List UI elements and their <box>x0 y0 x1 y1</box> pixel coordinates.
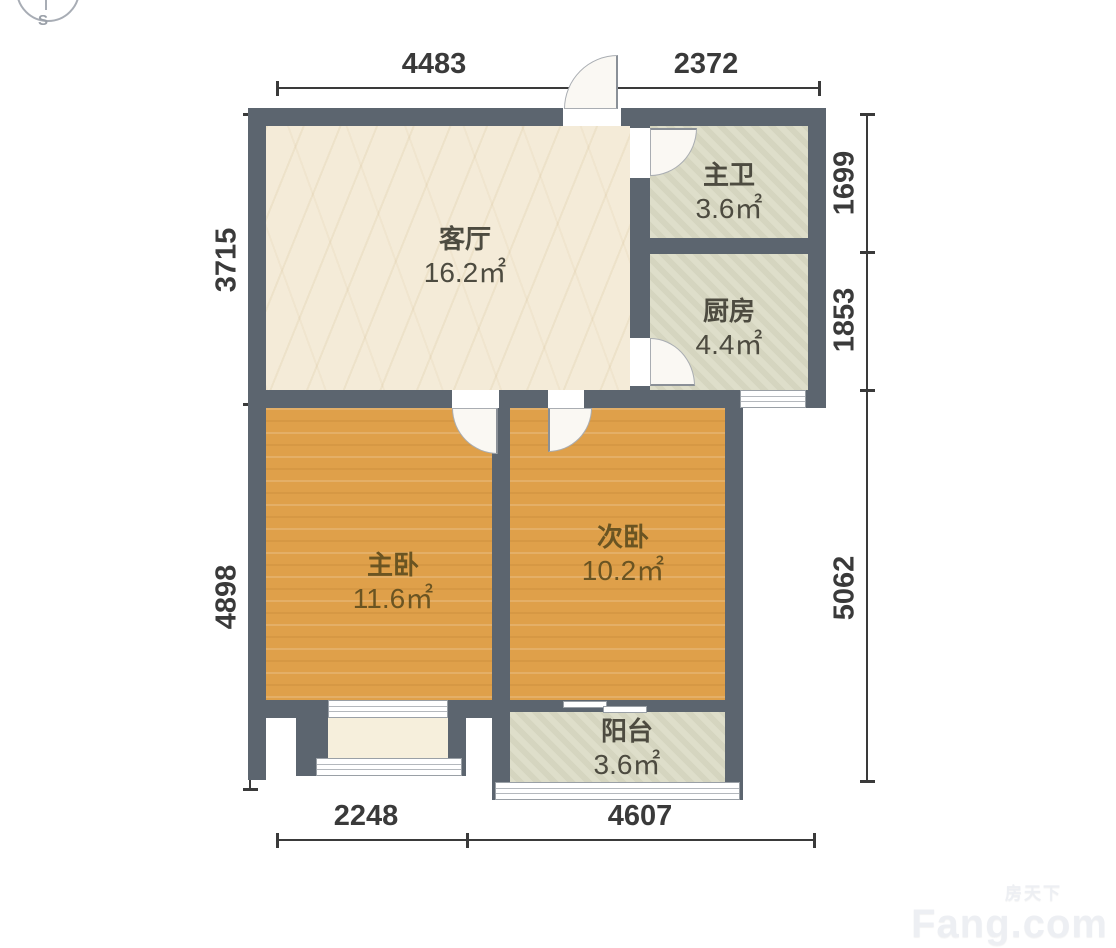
room-label-master-bedroom: 主卧 11.6㎡ <box>308 550 478 616</box>
dim-label-right-1: 1699 <box>829 151 862 216</box>
balcony-name: 阳台 <box>542 716 712 747</box>
living-room-name: 客厅 <box>380 224 550 255</box>
balcony-area: 3.6㎡ <box>542 747 712 782</box>
master-bath-name: 主卫 <box>644 160 814 191</box>
living-room-area: 16.2㎡ <box>380 255 550 290</box>
dim-tick <box>860 251 875 254</box>
dim-tick <box>276 81 279 96</box>
compass-south-label: S <box>38 12 48 29</box>
wall-left <box>248 108 266 780</box>
dim-label-right-3: 5062 <box>829 556 862 621</box>
bay-window-sill <box>316 758 462 776</box>
dim-tick <box>243 788 258 791</box>
wall-right-upper <box>808 108 826 408</box>
dim-label-top-2: 2372 <box>674 48 739 81</box>
room-label-kitchen: 厨房 4.4㎡ <box>644 296 814 362</box>
master-door-opening <box>452 390 499 408</box>
dim-line-bottom <box>277 839 815 841</box>
dim-tick <box>276 833 279 848</box>
kitchen-name: 厨房 <box>644 296 814 327</box>
second-bedroom-area: 10.2㎡ <box>538 553 708 588</box>
second-bedroom-name: 次卧 <box>538 522 708 553</box>
room-label-balcony: 阳台 3.6㎡ <box>542 716 712 782</box>
dim-tick <box>860 780 875 783</box>
second-door-opening <box>548 390 584 408</box>
dim-tick <box>860 389 875 392</box>
dim-label-left-2: 4898 <box>211 565 244 630</box>
compass-needle-icon <box>45 0 47 10</box>
entrance-door-arc <box>564 55 618 109</box>
balcony-sliding-door-panel <box>603 706 647 713</box>
fang-watermark-cn: 房天下 <box>911 885 1108 902</box>
balcony-railing-window <box>495 782 740 800</box>
dim-tick <box>813 833 816 848</box>
floor-bay-window <box>328 712 448 760</box>
room-label-second-bedroom: 次卧 10.2㎡ <box>538 522 708 588</box>
dim-tick <box>466 833 469 848</box>
kitchen-window <box>740 390 806 408</box>
wall-right-lower <box>725 408 743 800</box>
fang-watermark: 房天下 Fang.com <box>911 885 1108 944</box>
dim-label-right-2: 1853 <box>829 288 862 353</box>
dim-line-right <box>866 114 868 782</box>
master-bath-area: 3.6㎡ <box>644 191 814 226</box>
floorplan-canvas: S 4483 2372 2248 4607 3715 4898 1699 185… <box>0 0 1116 948</box>
wall-top <box>248 108 826 126</box>
dim-tick <box>860 113 875 116</box>
master-bedroom-name: 主卧 <box>308 550 478 581</box>
balcony-sliding-door-panel <box>563 701 607 708</box>
fang-watermark-en: Fang.com <box>911 904 1108 944</box>
room-label-living: 客厅 16.2㎡ <box>380 224 550 290</box>
dim-label-left-1: 3715 <box>211 228 244 293</box>
dim-line-top <box>277 87 820 89</box>
wall-bath-kitchen-divider <box>650 238 808 254</box>
dim-label-top-1: 4483 <box>402 48 467 81</box>
dim-label-bottom-1: 2248 <box>334 800 399 833</box>
dim-tick <box>818 81 821 96</box>
master-bay-opening-window <box>328 700 448 718</box>
kitchen-area: 4.4㎡ <box>644 327 814 362</box>
dim-label-bottom-2: 4607 <box>608 800 673 833</box>
master-bedroom-area: 11.6㎡ <box>308 581 478 616</box>
room-label-master-bath: 主卫 3.6㎡ <box>644 160 814 226</box>
entrance-opening <box>563 108 621 126</box>
